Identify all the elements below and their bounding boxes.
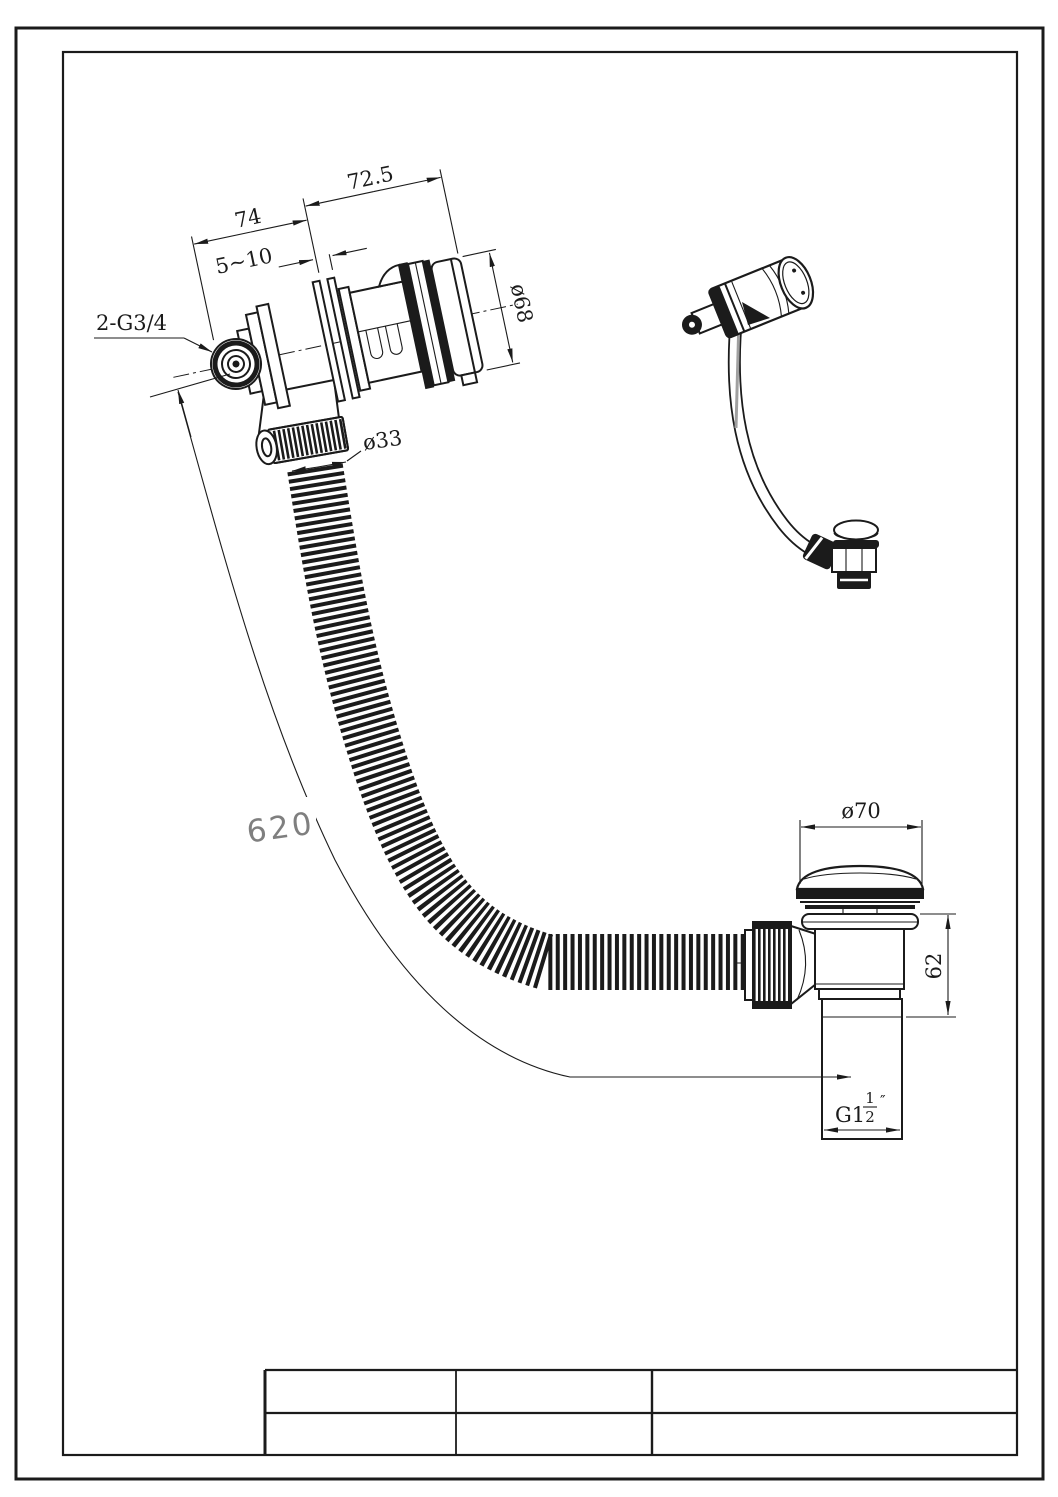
waste-cap [797,866,923,889]
outlet-thread-prefix: G1 [835,1103,865,1127]
title-block [265,1370,1017,1455]
outlet-thread-unit: ″ [880,1092,886,1110]
corrugated-hose [315,468,753,962]
iso-waste [802,521,879,590]
dim-dia70-label: ø70 [841,799,880,823]
dim-62-label: 62 [922,953,946,980]
dim-72-5-label: 72.5 [345,161,396,194]
drawing-sheet: 74 72.5 5~10 ø68 2-G3/4 ø33 [0,0,1058,1497]
waste-body [815,929,904,989]
iso-overflow-head [673,252,820,353]
isometric-view [673,252,879,589]
inner-border [63,52,1017,1455]
dim-74-label: 74 [232,204,263,233]
waste-valve-side-view: ø70 62 G1 1 2 ″ [737,799,956,1139]
dim-dia33-label: ø33 [361,426,403,455]
dim-wall-gap-label: 5~10 [213,243,274,278]
outlet-thread-numerator: 1 [865,1089,875,1107]
outlet-thread-denominator: 2 [865,1108,875,1126]
dim-dia68-label: ø68 [506,282,538,326]
iso-waste-cap [834,521,878,540]
sheet-frame [16,28,1043,1479]
iso-waste-hex [832,548,876,572]
outer-border [16,28,1043,1479]
overflow-side-view: 74 72.5 5~10 ø68 [139,138,548,443]
inlet-thread-label: 2-G3/4 [96,311,167,335]
